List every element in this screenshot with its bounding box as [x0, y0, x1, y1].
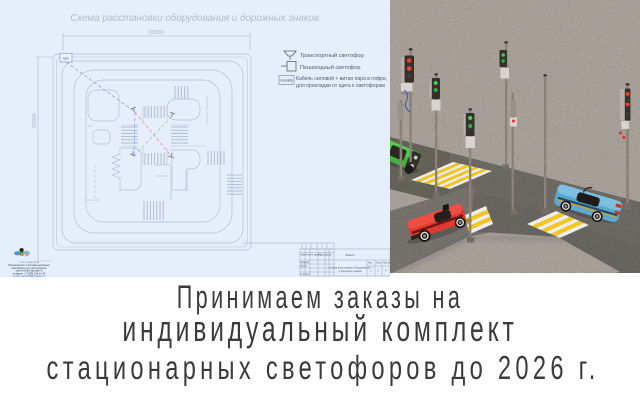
svg-text:Схема расстановки оборудования: Схема расстановки оборудования и дорожны…	[70, 13, 321, 24]
svg-text:Схема расстановки оборудования: Схема расстановки оборудования	[329, 266, 371, 270]
svg-text:Шлейф: Шлейф	[280, 79, 292, 83]
svg-text:Пров.: Пров.	[301, 264, 308, 268]
svg-text:Кабель силовой + витая пара в: Кабель силовой + витая пара в гофре,	[296, 75, 387, 82]
svg-text:Лит.: Лит.	[368, 261, 373, 265]
svg-text:1: 1	[370, 269, 372, 273]
svg-text:Финал: Финал	[345, 253, 354, 257]
svg-text:Листов: Листов	[383, 261, 390, 265]
svg-text:20000: 20000	[148, 30, 163, 36]
svg-text:Разраб.: Разраб.	[301, 260, 311, 264]
svg-text:для прокладки от щита к светоф: для прокладки от щита к светофорам	[296, 83, 385, 89]
svg-text:Пешеходный светофор: Пешеходный светофор	[300, 64, 360, 71]
svg-text:Н.контр.: Н.контр.	[301, 272, 311, 276]
svg-text:Лист: Лист	[376, 261, 382, 265]
svg-text:2: 2	[378, 269, 380, 273]
svg-text:почта: svetofor59@yandex.ru: почта: svetofor59@yandex.ru	[12, 275, 46, 277]
svg-text:20000: 20000	[32, 113, 38, 128]
svg-text:и дорожных знаков: и дорожных знаков	[338, 270, 362, 273]
svg-text:Щит: Щит	[63, 57, 70, 61]
svg-text:Транспортный светофор: Транспортный светофор	[300, 52, 364, 59]
svg-text:Дата: Дата	[326, 253, 332, 257]
svg-text:2: 2	[385, 269, 387, 273]
